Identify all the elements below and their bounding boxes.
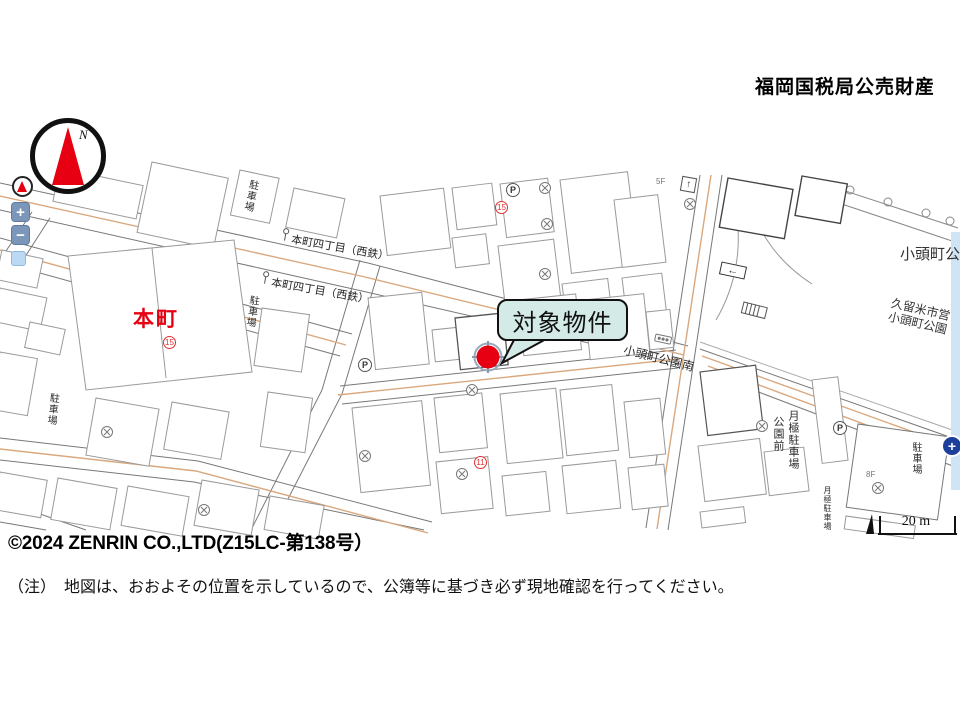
crosswalk-icon <box>741 302 767 318</box>
copyright-text: ©2024 ZENRIN CO.,LTD(Z15LC-第138号） <box>8 528 373 555</box>
floor-label: 8F <box>866 470 875 479</box>
zoom-in-button[interactable]: + <box>11 202 30 222</box>
monthly-parking-main-label: 月極駐車場 <box>785 410 801 470</box>
target-property-callout: 対象物件 <box>497 299 628 341</box>
compass-n-label: N <box>79 127 88 143</box>
parking-label-e: 駐車場 <box>908 442 923 475</box>
scale-bar-label: 20 m <box>884 514 948 530</box>
map-tool-chip[interactable] <box>11 251 26 266</box>
compass-rose: N <box>30 118 106 194</box>
parking-p-icon: P <box>833 421 847 435</box>
bus-stop-number-badge: 15 <box>495 201 508 214</box>
parking-p-icon: P <box>358 358 372 372</box>
mini-compass-needle-icon <box>17 181 27 192</box>
bus-stop-icon <box>280 227 291 242</box>
bus-stop-icon <box>260 270 271 285</box>
floor-label: 5F <box>656 177 665 186</box>
monthly-parking-small-label: 月極駐車場 <box>822 486 833 531</box>
page: 福岡国税局公売財産 N <box>0 0 960 720</box>
compass-needle-icon <box>35 123 101 189</box>
district-label-honmachi: 本町 <box>133 303 179 333</box>
disclaimer-note: （注） 地図は、おおよその位置を示しているので、公簿等に基づき必ず現地確認を行っ… <box>8 573 734 597</box>
park-name-label: 小頭町公 <box>900 243 960 264</box>
mini-compass-button[interactable] <box>12 176 33 197</box>
map-area[interactable]: 対象物件 本町 本町四丁目（西鉄） 本町四丁目（西鉄） 小頭町公園南 小頭町公 … <box>0 0 960 560</box>
arrow-up-sign-icon: ↑ <box>680 176 697 193</box>
buildings <box>0 162 949 539</box>
map-canvas <box>0 0 960 560</box>
pan-right-button[interactable]: + <box>941 435 960 457</box>
parking-p-icon: P <box>506 183 520 197</box>
bus-stop-number-badge: 11 <box>474 456 487 469</box>
monthly-parking-front-label: 公園前 <box>770 416 786 452</box>
zoom-out-button[interactable]: − <box>11 225 30 245</box>
bus-stop-number-badge: 15 <box>163 336 176 349</box>
